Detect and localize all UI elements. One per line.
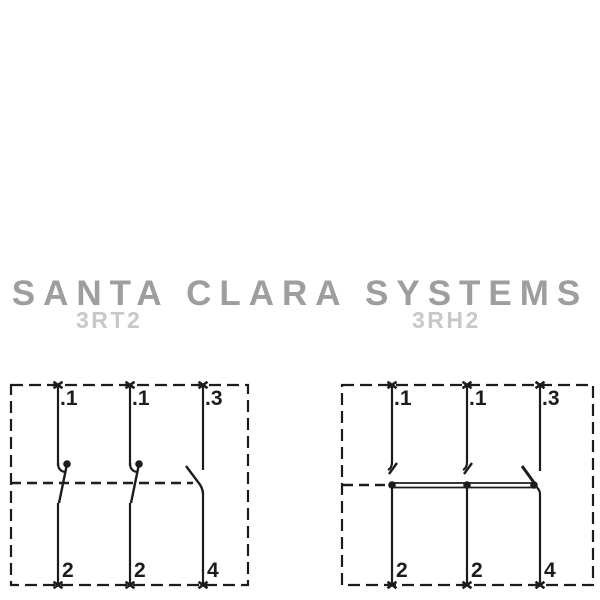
terminal-label: .1 <box>469 388 487 409</box>
linked-contact-pole-1 <box>388 385 397 585</box>
terminal-label: 2 <box>134 560 146 581</box>
schematics-canvas <box>0 0 600 600</box>
contact-dot <box>63 460 71 468</box>
terminal-label: .1 <box>60 388 78 409</box>
terminal-label: .3 <box>542 388 560 409</box>
terminal-label: 4 <box>207 560 219 581</box>
terminal-label: .1 <box>394 388 412 409</box>
linked-contact-pole-2 <box>463 385 472 585</box>
contact-dot <box>388 481 396 489</box>
contact-dot <box>463 481 471 489</box>
linked-contact-pole-3 <box>522 385 540 585</box>
schematic-3rt2 <box>11 382 248 588</box>
schematic-3rh2 <box>342 382 593 588</box>
terminal-label: 2 <box>62 560 74 581</box>
terminal-label: 2 <box>471 560 483 581</box>
terminal-label: 4 <box>544 560 556 581</box>
main-contact-pole-1 <box>58 385 71 585</box>
terminal-label: .1 <box>132 388 150 409</box>
terminal-label: .3 <box>205 388 223 409</box>
contact-dot <box>135 460 143 468</box>
main-contact-pole-2 <box>130 385 143 585</box>
aux-contact-pole-3 <box>186 385 203 585</box>
terminal-label: 2 <box>396 560 408 581</box>
